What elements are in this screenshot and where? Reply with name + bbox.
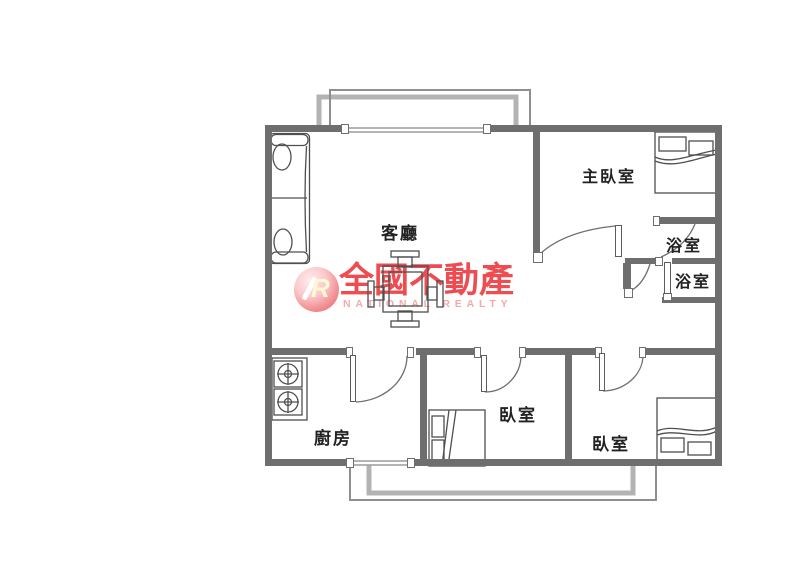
door-jamb xyxy=(483,124,491,134)
right-bedroom-door-leaf xyxy=(599,353,605,391)
door-jamb xyxy=(407,458,415,468)
wall-segment xyxy=(521,348,596,355)
bathroom-door-leaf xyxy=(664,262,671,294)
wall-segment xyxy=(623,263,631,289)
corridor-bath-door-arc xyxy=(632,264,650,290)
door-jamb xyxy=(341,124,349,134)
room-label-master-bedroom: 主臥室 xyxy=(582,163,636,187)
floor-plan: R 全國不動產 NATIONAL REALTY xyxy=(0,0,800,577)
room-label-bedroom-middle: 臥室 xyxy=(499,401,537,426)
room-label-kitchen: 廚房 xyxy=(314,424,352,449)
room-label-living: 客廳 xyxy=(381,219,419,244)
door-jamb xyxy=(653,216,660,226)
master-bedroom-door-leaf xyxy=(615,225,622,257)
wall-segment xyxy=(490,125,722,132)
door-jamb xyxy=(407,347,414,358)
sofa-icon xyxy=(270,134,310,264)
wall-segment xyxy=(420,350,427,466)
room-label-bedroom-right: 臥室 xyxy=(592,430,630,455)
door-jamb xyxy=(474,347,481,358)
wall-segment xyxy=(672,258,722,264)
wall-segment xyxy=(265,459,348,466)
door-jamb xyxy=(624,288,633,298)
middle-bed-icon xyxy=(429,410,485,466)
wall-segment xyxy=(265,125,272,466)
wall-segment xyxy=(715,125,722,466)
wall-segment xyxy=(265,125,348,132)
balcony-bottom xyxy=(350,465,656,500)
kitchen-door-leaf xyxy=(350,355,356,402)
wall-segment xyxy=(533,125,540,254)
door-jamb xyxy=(639,347,646,358)
room-label-bathroom-top: 浴室 xyxy=(666,232,702,256)
right-bed-icon xyxy=(657,398,717,460)
middle-bedroom-door-arc xyxy=(485,355,521,392)
door-jamb xyxy=(346,458,354,468)
stove-icon xyxy=(272,358,307,420)
wall-segment xyxy=(653,217,722,224)
middle-bedroom-door-leaf xyxy=(481,355,487,392)
wall-segment xyxy=(641,348,722,355)
wall-segment xyxy=(265,348,348,355)
master-bedroom-door-arc xyxy=(541,226,615,253)
door-jamb xyxy=(655,257,663,266)
sliding-door-track xyxy=(349,128,489,465)
wall-segment xyxy=(565,348,572,466)
right-bedroom-door-arc xyxy=(603,355,643,391)
dining-table-icon xyxy=(368,251,443,327)
room-label-bathroom-bottom: 浴室 xyxy=(675,268,711,292)
master-bed-icon xyxy=(655,132,717,193)
kitchen-door-arc xyxy=(356,356,407,402)
door-jamb xyxy=(533,252,543,263)
door-jamb xyxy=(663,293,672,301)
door-jamb xyxy=(519,347,526,358)
